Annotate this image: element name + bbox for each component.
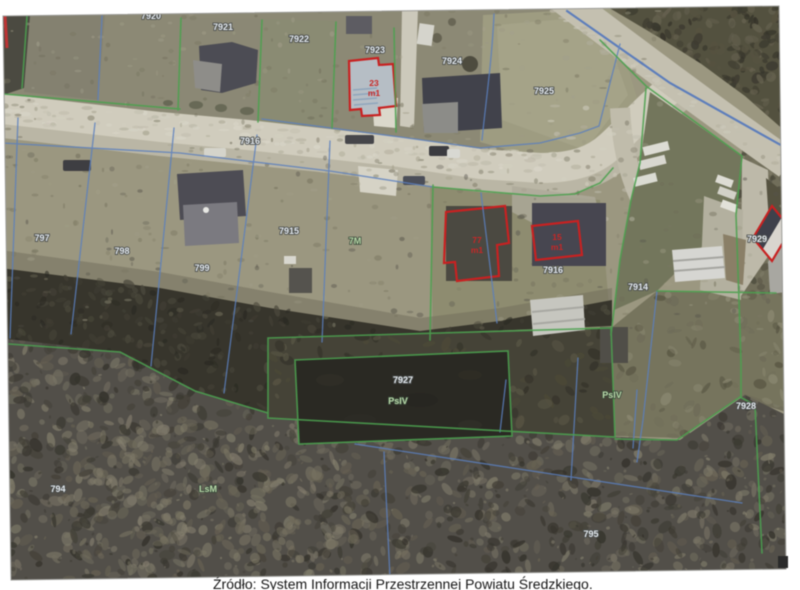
svg-text:7915: 7915 xyxy=(279,226,299,236)
svg-text:m1: m1 xyxy=(368,88,381,98)
svg-text:m1: m1 xyxy=(471,245,484,255)
svg-text:15: 15 xyxy=(552,232,562,242)
svg-text:7924: 7924 xyxy=(442,56,462,66)
svg-text:797: 797 xyxy=(34,233,49,243)
svg-text:7922: 7922 xyxy=(289,34,309,44)
svg-text:7927: 7927 xyxy=(393,375,413,385)
svg-text:799: 799 xyxy=(194,263,209,273)
svg-text:7929: 7929 xyxy=(747,234,767,244)
svg-text:77: 77 xyxy=(472,235,482,245)
svg-text:23: 23 xyxy=(369,78,379,88)
svg-text:7M: 7M xyxy=(349,236,362,246)
svg-text:7928: 7928 xyxy=(736,401,756,411)
svg-text:7916: 7916 xyxy=(240,136,260,146)
svg-text:794: 794 xyxy=(50,484,65,494)
svg-text:7914: 7914 xyxy=(628,282,648,292)
svg-text:m1: m1 xyxy=(551,242,564,252)
svg-text:795: 795 xyxy=(583,529,598,539)
svg-text:798: 798 xyxy=(114,246,129,256)
svg-text:PsIV: PsIV xyxy=(602,390,622,400)
svg-text:PsIV: PsIV xyxy=(388,396,408,406)
svg-text:7925: 7925 xyxy=(534,86,554,96)
svg-text:7921: 7921 xyxy=(213,22,233,32)
svg-text:7916: 7916 xyxy=(543,265,563,275)
svg-text:7923: 7923 xyxy=(365,45,385,55)
svg-text:Źródło: System Informacji Prze: Źródło: System Informacji Przestrzennej … xyxy=(213,575,593,590)
svg-text:LsM: LsM xyxy=(199,484,217,494)
